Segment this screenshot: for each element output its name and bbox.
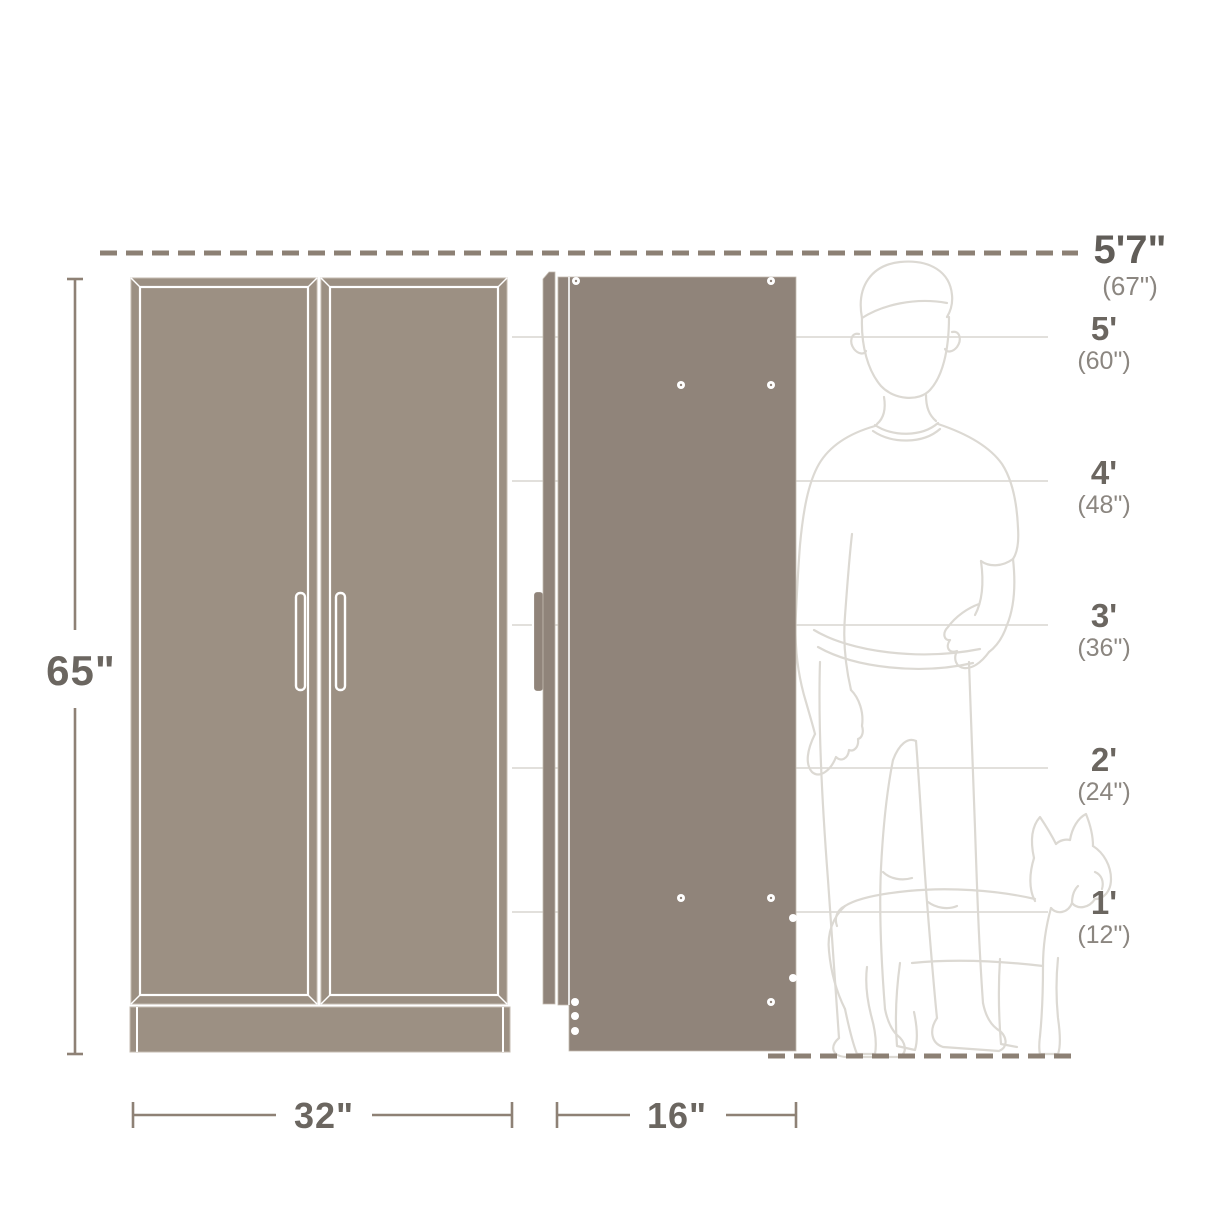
dog-silhouette [829, 814, 1111, 1054]
scale-label-5ft: 5' (60") [1077, 312, 1130, 375]
scale-label-5ft7: 5'7" (67") [1094, 229, 1167, 301]
scale-feet-value: 2' [1077, 743, 1130, 778]
cabinet-side-view [533, 272, 797, 1051]
scale-label-4ft: 4' (48") [1077, 456, 1130, 519]
dimension-diagram: 65" 32" 16" 5'7" (67") 5' (60") 4' (48")… [0, 0, 1214, 1214]
scale-inches-value: (36") [1077, 635, 1130, 663]
scale-inches-value: (48") [1077, 492, 1130, 520]
scale-feet-value: 1' [1077, 886, 1130, 921]
cabinet-front-view [130, 278, 510, 1052]
scale-inches-value: (60") [1077, 348, 1130, 376]
scale-label-3ft: 3' (36") [1077, 599, 1130, 662]
right-door-handle [336, 593, 345, 690]
depth-dimension-label: 16" [647, 1095, 707, 1137]
height-dimension-label: 65" [46, 647, 116, 695]
left-door-handle [296, 593, 305, 690]
diagram-artwork [0, 0, 1214, 1214]
scale-label-2ft: 2' (24") [1077, 743, 1130, 806]
scale-inches-value: (67") [1094, 272, 1167, 301]
scale-feet-value: 5'7" [1094, 229, 1167, 271]
scale-inches-value: (12") [1077, 922, 1130, 950]
side-view-handle [533, 591, 544, 692]
scale-label-1ft: 1' (12") [1077, 886, 1130, 949]
scale-feet-value: 5' [1077, 312, 1130, 347]
scale-inches-value: (24") [1077, 779, 1130, 807]
cabinet-base [130, 1007, 510, 1052]
scale-feet-value: 4' [1077, 456, 1130, 491]
scale-feet-value: 3' [1077, 599, 1130, 634]
width-dimension-label: 32" [294, 1095, 354, 1137]
